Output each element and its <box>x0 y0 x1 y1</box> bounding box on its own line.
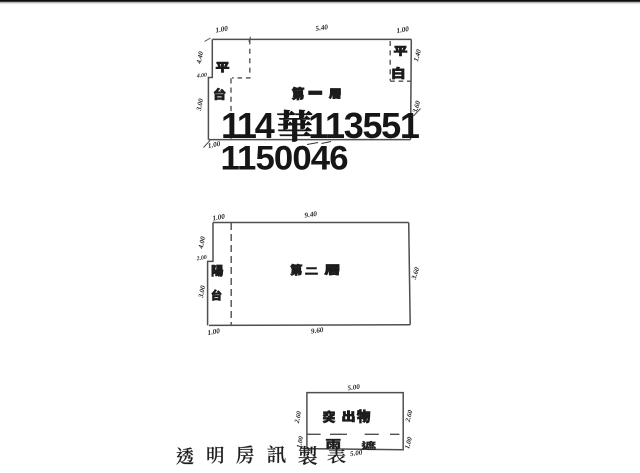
svg-text:4.00: 4.00 <box>196 73 208 80</box>
svg-text:1150046: 1150046 <box>221 140 349 178</box>
